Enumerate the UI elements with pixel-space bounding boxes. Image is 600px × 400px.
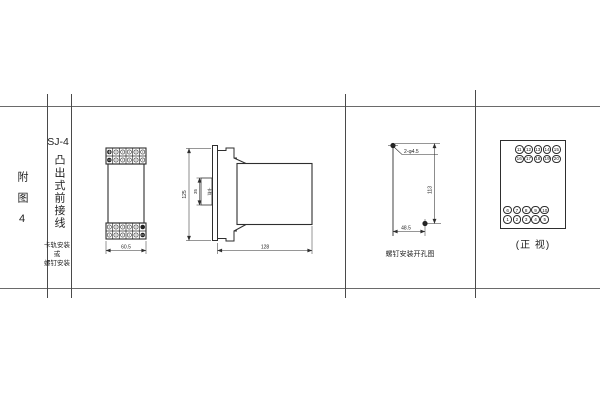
terminal-circle: 12 (524, 145, 533, 154)
terminal-circle: 7 (513, 206, 522, 215)
terminal-row: 12345 (503, 215, 549, 224)
terminal-row: 678910 (503, 205, 549, 214)
terminal-circle: 9 (531, 206, 540, 215)
drill-horizontal-dim: 48.5 (401, 226, 411, 232)
terminal-panel: 1112131415 1617181920 678910 12345 (500, 140, 566, 229)
terminal-circle: 20 (552, 155, 561, 164)
terminal-circle: 10 (540, 206, 549, 215)
terminal-circle: 15 (552, 145, 561, 154)
side-view-height-dim: 125 (182, 190, 188, 199)
terminal-row: 1112131415 (515, 145, 561, 154)
terminal-circle: 8 (522, 206, 531, 215)
terminal-circle: 5 (540, 215, 549, 224)
terminal-circle: 1 (503, 215, 512, 224)
terminal-circle: 16 (515, 155, 524, 164)
hole-diameter-label: 2-φ4.5 (404, 149, 419, 155)
terminal-circle: 14 (543, 145, 552, 154)
terminal-circle: 19 (543, 155, 552, 164)
terminal-circle: 13 (534, 145, 543, 154)
terminal-bottom-group: 678910 12345 (503, 205, 549, 224)
terminal-row: 1617181920 (515, 154, 561, 163)
figure-sheet: 附图4 SJ-4 凸出式前接线 卡轨安装 或 螺钉安装 (0, 0, 600, 400)
terminal-circle: 4 (531, 215, 540, 224)
terminal-circle: 2 (513, 215, 522, 224)
terminal-circle: 3 (522, 215, 531, 224)
side-view-drawing: 125 卡轨 35 128 (182, 146, 312, 255)
terminal-panel-caption: (正 视) (501, 236, 565, 251)
drill-vertical-dim: 113 (428, 186, 434, 194)
drill-view-drawing: 2-φ4.5 113 48.5 (388, 143, 441, 236)
rail-dim: 35 (193, 189, 198, 195)
terminal-circle: 11 (515, 145, 524, 154)
terminal-circle: 6 (503, 206, 512, 215)
drill-view-caption: 螺钉安装开孔图 (369, 249, 451, 259)
terminal-top-group: 1112131415 1617181920 (515, 145, 561, 164)
terminal-circle: 17 (524, 155, 533, 164)
front-view-width-dim: 60.5 (121, 245, 131, 251)
front-view-drawing: 60.5 (106, 148, 146, 254)
side-view-depth-dim: 128 (261, 245, 270, 251)
terminal-circle: 18 (534, 155, 543, 164)
